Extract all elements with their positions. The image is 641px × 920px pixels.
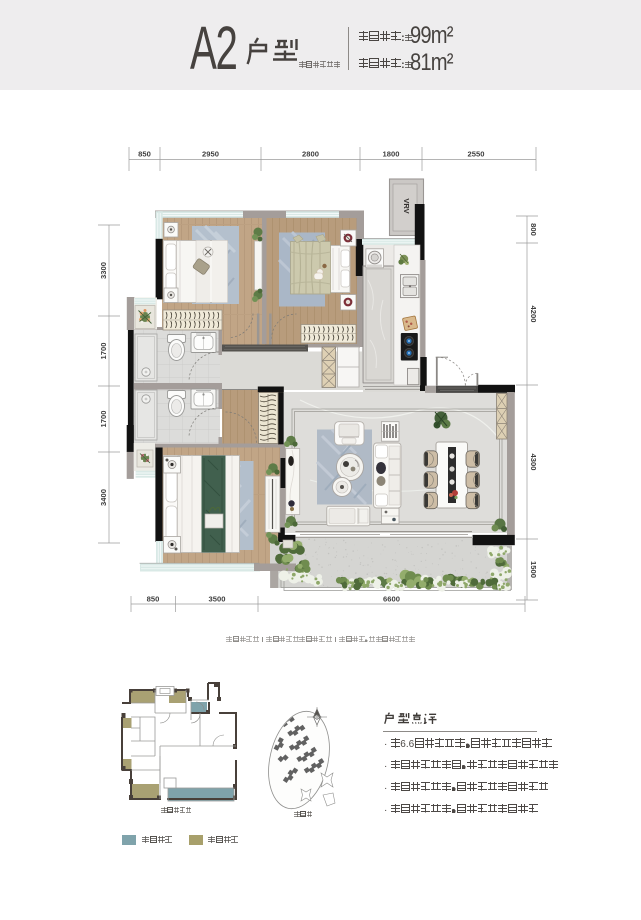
svg-text:2800: 2800 (302, 150, 319, 159)
svg-text:3300: 3300 (99, 262, 108, 279)
svg-text:3400: 3400 (99, 489, 108, 506)
svg-text:3500: 3500 (209, 595, 226, 604)
svg-text:1700: 1700 (99, 411, 108, 428)
svg-text:850: 850 (147, 595, 160, 604)
svg-text:4200: 4200 (529, 306, 538, 323)
svg-text:VRV: VRV (402, 198, 411, 213)
svg-text:1700: 1700 (99, 343, 108, 360)
svg-text:1800: 1800 (383, 150, 400, 159)
svg-text:2950: 2950 (202, 150, 219, 159)
svg-text:2550: 2550 (468, 150, 485, 159)
svg-text:1500: 1500 (529, 561, 538, 578)
svg-text:6600: 6600 (383, 595, 400, 604)
svg-text:800: 800 (529, 223, 538, 236)
svg-text:850: 850 (138, 150, 151, 159)
svg-text:4300: 4300 (529, 454, 538, 471)
